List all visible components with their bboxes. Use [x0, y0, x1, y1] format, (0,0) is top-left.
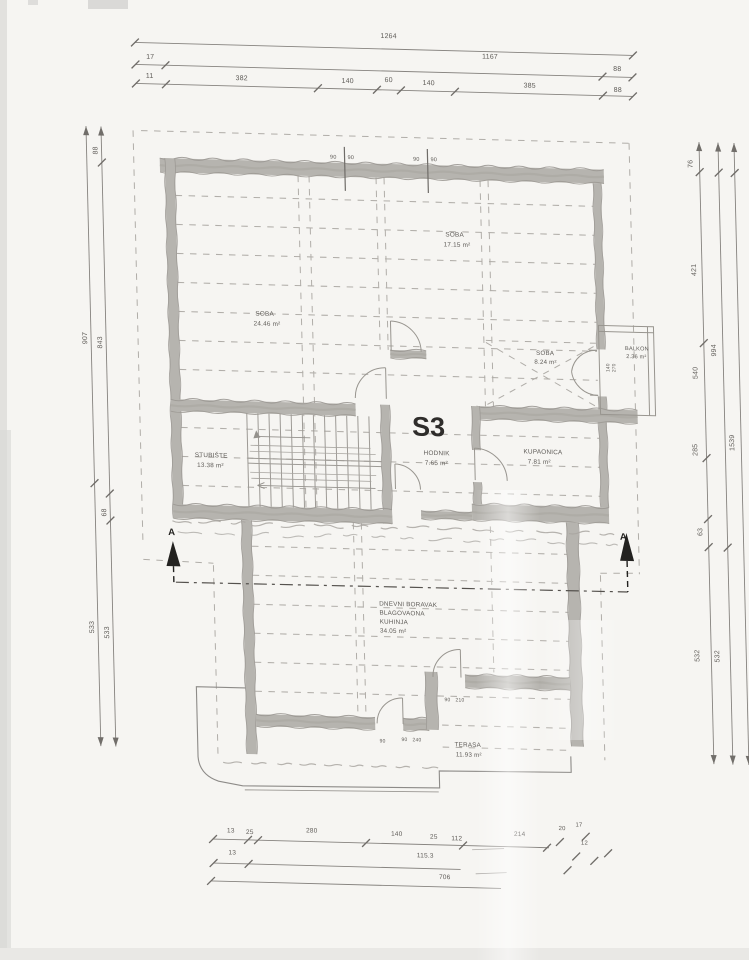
svg-text:115.3: 115.3	[417, 852, 434, 859]
svg-text:SOBA: SOBA	[445, 231, 464, 238]
svg-text:421: 421	[691, 264, 698, 276]
svg-text:994: 994	[711, 344, 718, 356]
svg-text:20: 20	[558, 826, 566, 832]
svg-text:90: 90	[444, 697, 450, 703]
svg-text:90: 90	[379, 738, 385, 744]
svg-text:76: 76	[687, 160, 694, 168]
svg-text:BLAGOVAONA: BLAGOVAONA	[379, 609, 425, 617]
svg-text:60: 60	[385, 77, 393, 84]
svg-text:90: 90	[348, 155, 355, 161]
svg-text:285: 285	[692, 444, 699, 456]
svg-text:532: 532	[714, 650, 721, 662]
svg-text:385: 385	[524, 83, 536, 90]
svg-text:A: A	[168, 527, 175, 538]
svg-text:2.36 m²: 2.36 m²	[626, 354, 647, 361]
svg-text:706: 706	[439, 874, 451, 881]
svg-text:90: 90	[431, 157, 438, 163]
svg-text:68: 68	[101, 508, 108, 516]
svg-text:90: 90	[330, 154, 337, 160]
svg-text:1264: 1264	[380, 33, 397, 40]
svg-text:KUPAONICA: KUPAONICA	[523, 448, 563, 456]
svg-text:17: 17	[146, 54, 154, 61]
svg-text:140: 140	[342, 78, 354, 85]
svg-text:A: A	[620, 532, 627, 543]
svg-text:13: 13	[228, 849, 236, 856]
svg-text:280: 280	[306, 827, 318, 834]
svg-text:1167: 1167	[482, 54, 498, 61]
svg-text:88: 88	[92, 146, 99, 154]
svg-text:90: 90	[401, 737, 407, 743]
svg-text:25: 25	[246, 829, 254, 836]
svg-text:140: 140	[605, 363, 611, 372]
svg-text:KUHINJA: KUHINJA	[380, 618, 409, 626]
svg-text:63: 63	[697, 528, 704, 536]
svg-text:112: 112	[451, 835, 462, 842]
svg-text:140: 140	[423, 80, 435, 87]
svg-text:34.05 m²: 34.05 m²	[380, 627, 407, 635]
svg-text:25: 25	[430, 834, 438, 841]
svg-text:7.65 m²: 7.65 m²	[425, 460, 448, 468]
svg-text:533: 533	[89, 621, 96, 633]
svg-text:13.38 m²: 13.38 m²	[197, 462, 224, 470]
svg-text:532: 532	[694, 650, 701, 662]
svg-text:533: 533	[104, 626, 111, 638]
svg-text:SOBA: SOBA	[536, 350, 555, 357]
svg-text:210: 210	[455, 697, 464, 703]
svg-text:843: 843	[97, 336, 104, 348]
svg-text:11: 11	[146, 73, 154, 80]
svg-text:88: 88	[614, 87, 622, 94]
svg-text:BALKON: BALKON	[625, 346, 649, 353]
svg-text:12: 12	[581, 841, 589, 847]
svg-text:382: 382	[236, 75, 248, 82]
svg-text:240: 240	[412, 737, 421, 743]
svg-text:270: 270	[611, 363, 617, 372]
svg-text:88: 88	[613, 66, 621, 73]
svg-text:17: 17	[575, 822, 583, 828]
svg-text:8.24 m²: 8.24 m²	[534, 359, 557, 367]
svg-text:13: 13	[227, 827, 235, 834]
svg-text:140: 140	[391, 831, 403, 838]
svg-text:90: 90	[413, 157, 420, 163]
svg-text:540: 540	[692, 367, 699, 379]
svg-text:907: 907	[82, 332, 89, 344]
svg-text:SOBA: SOBA	[255, 310, 274, 317]
svg-text:24.46 m²: 24.46 m²	[254, 320, 281, 328]
svg-text:7.81 m²: 7.81 m²	[528, 458, 551, 466]
svg-text:HODNIK: HODNIK	[424, 450, 451, 458]
svg-text:S3: S3	[412, 411, 446, 442]
svg-text:1539: 1539	[729, 435, 736, 452]
svg-text:17.15 m²: 17.15 m²	[444, 241, 471, 249]
